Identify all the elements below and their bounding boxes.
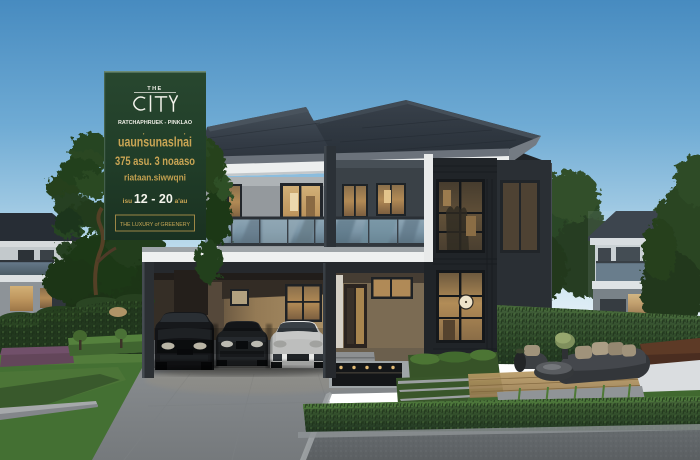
svg-text:375 asu. 3 noaaso: 375 asu. 3 noaaso <box>115 156 195 168</box>
svg-text:THE: THE <box>147 86 162 92</box>
svg-text:RATCHAPHRUEK - PINKLAO: RATCHAPHRUEK - PINKLAO <box>118 120 192 126</box>
svg-text:riataan.siwwqni: riataan.siwwqni <box>124 173 186 183</box>
svg-text:uaunsunaslnai: uaunsunaslnai <box>118 135 192 150</box>
svg-text:THE LUXURY of GREENERY: THE LUXURY of GREENERY <box>120 222 190 228</box>
